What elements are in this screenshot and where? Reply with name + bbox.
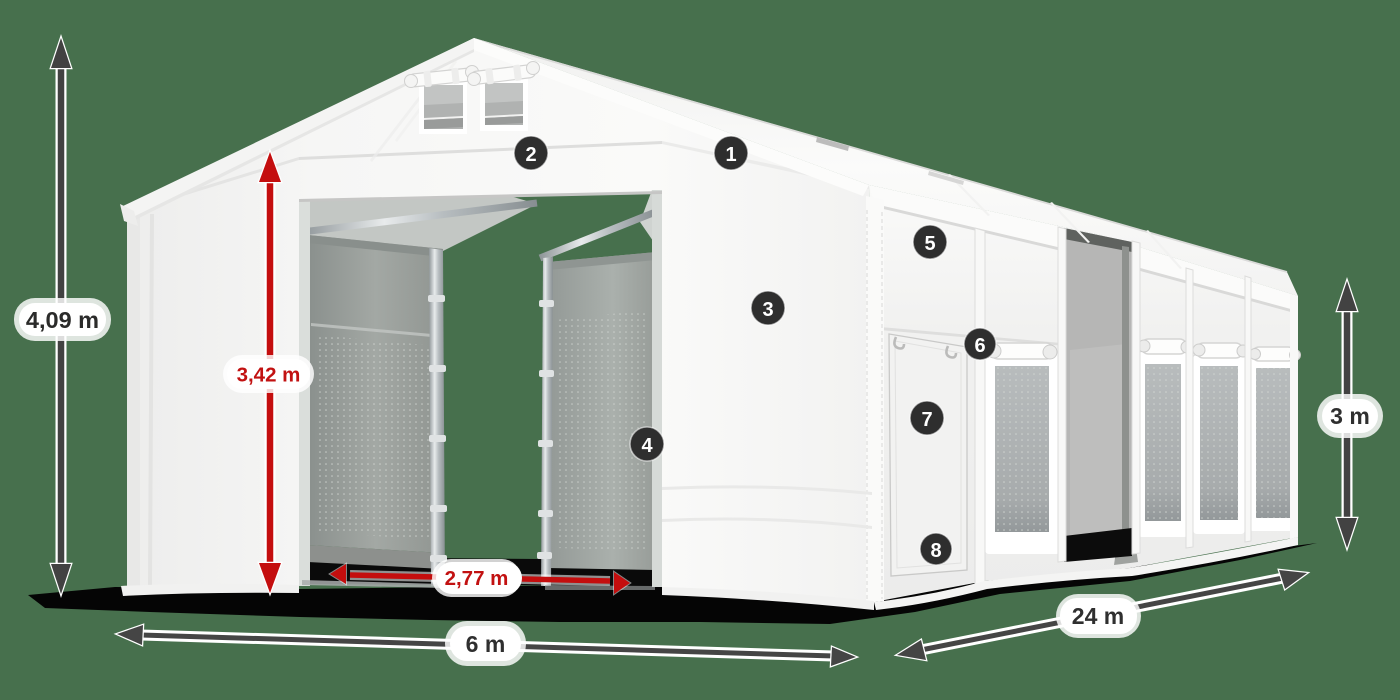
svg-text:3 m: 3 m: [1330, 403, 1370, 429]
svg-text:6 m: 6 m: [466, 631, 506, 657]
svg-text:3: 3: [762, 299, 773, 321]
svg-text:2: 2: [525, 144, 536, 166]
svg-text:4: 4: [641, 435, 653, 457]
svg-text:5: 5: [924, 233, 935, 255]
svg-text:1: 1: [725, 144, 736, 166]
svg-text:3,42 m: 3,42 m: [237, 364, 301, 387]
svg-text:6: 6: [974, 335, 985, 357]
svg-text:4,09 m: 4,09 m: [26, 307, 99, 333]
svg-text:24 m: 24 m: [1072, 603, 1124, 629]
svg-text:2,77 m: 2,77 m: [445, 567, 509, 590]
svg-text:7: 7: [921, 409, 932, 431]
svg-text:8: 8: [930, 540, 941, 562]
